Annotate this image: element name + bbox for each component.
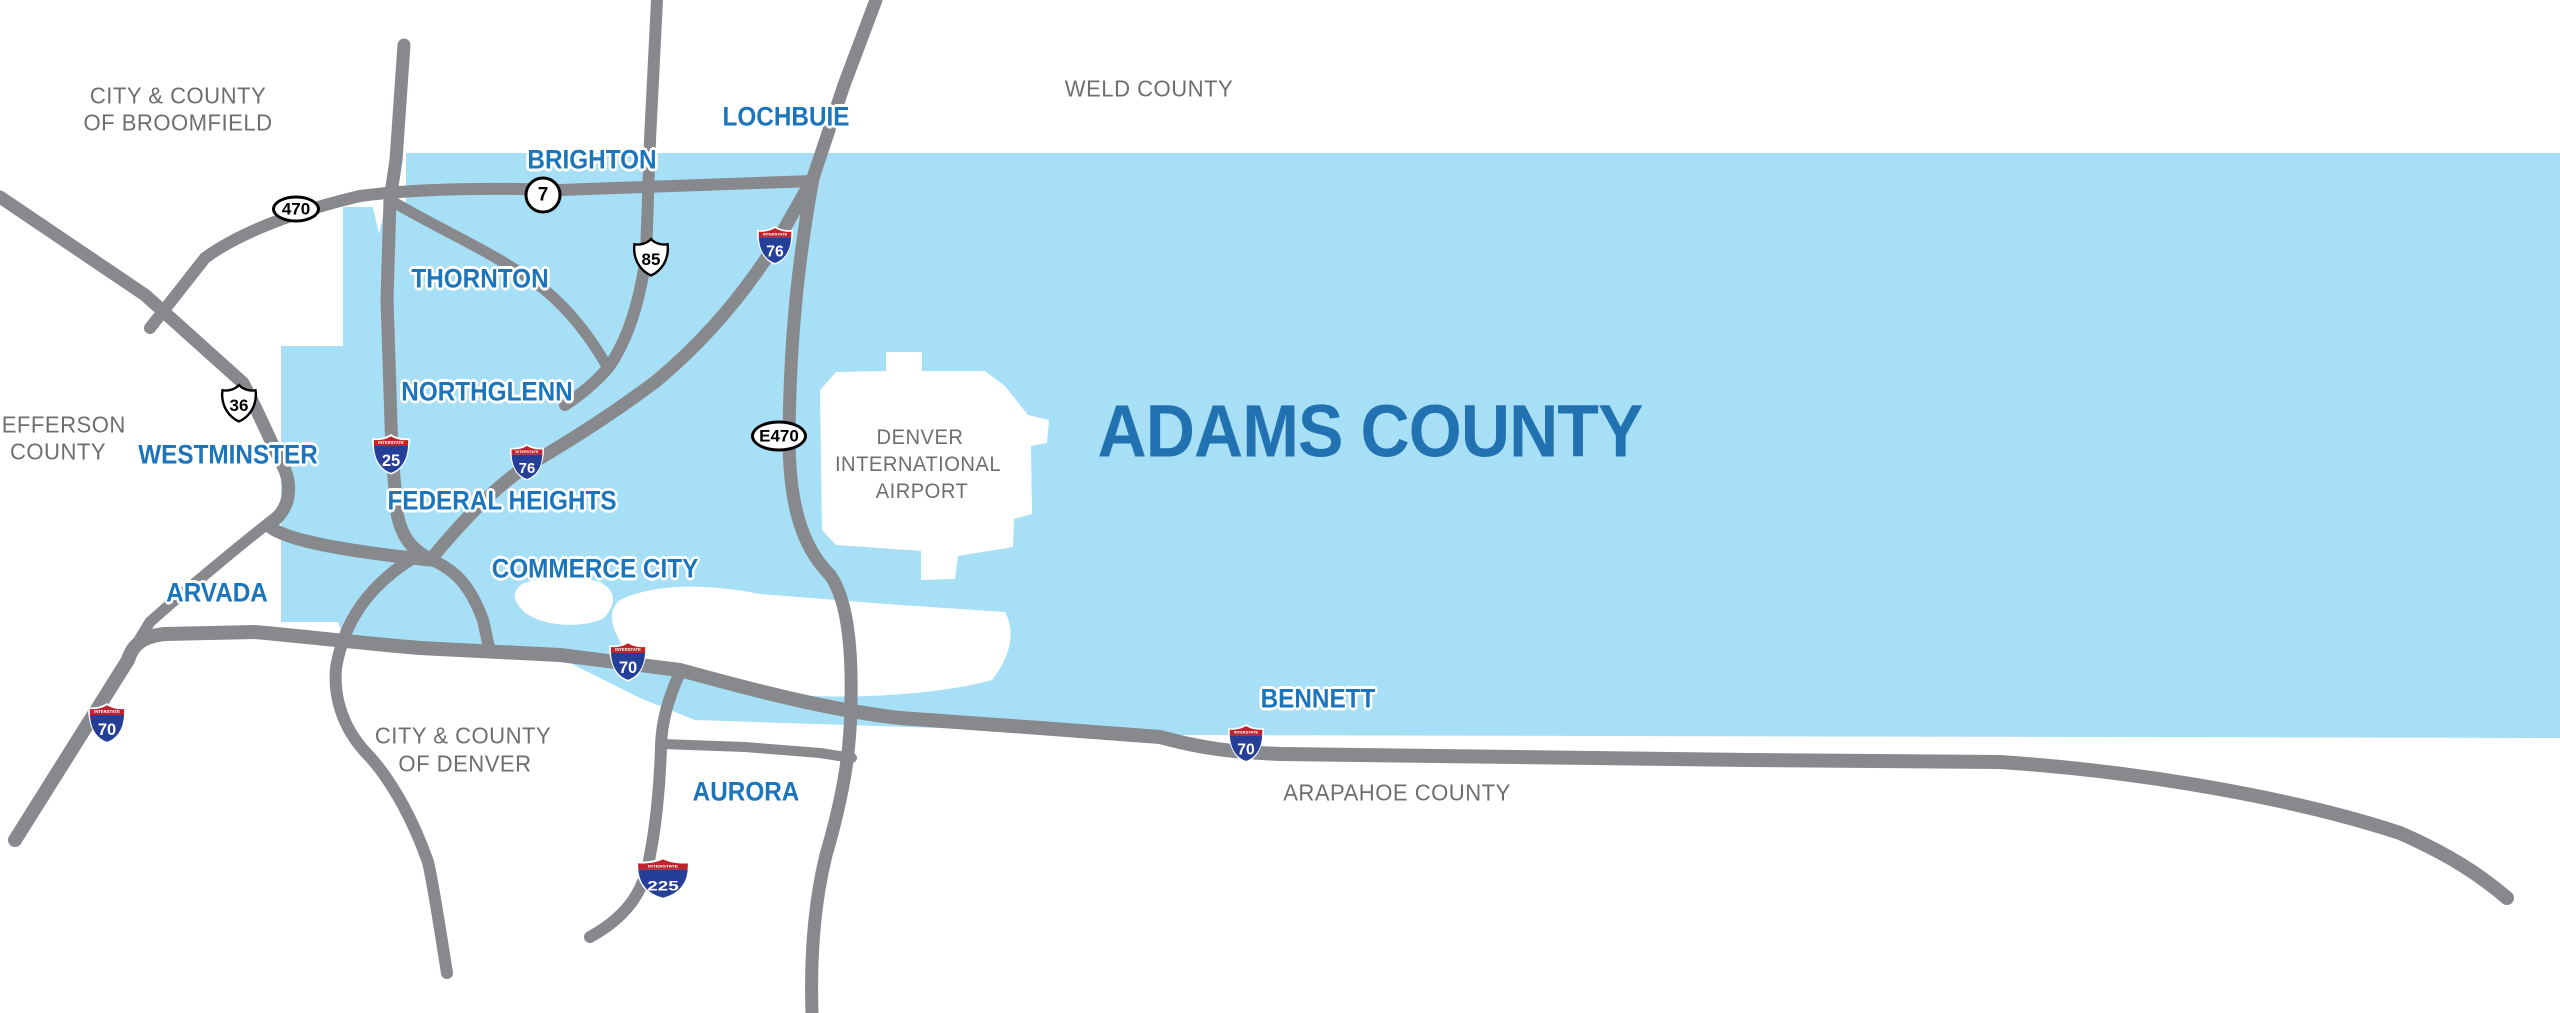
city-label-thornton: THORNTON	[411, 264, 548, 295]
area-label-broomfield-1: CITY & COUNTY	[90, 83, 266, 110]
svg-text:70: 70	[98, 721, 116, 739]
svg-text:25: 25	[382, 452, 400, 470]
area-label-broomfield-2: OF BROOMFIELD	[83, 110, 272, 137]
city-label-commerce-city: COMMERCE CITY	[492, 554, 699, 585]
svg-text:36: 36	[230, 396, 249, 415]
area-label-jefferson-2: COUNTY	[10, 439, 106, 466]
area-label-dia-3: AIRPORT	[876, 480, 969, 504]
route-badge-i70-east: INTERSTATE 70	[1227, 723, 1265, 763]
area-label-arapahoe: ARAPAHOE COUNTY	[1283, 780, 1511, 807]
svg-text:85: 85	[642, 250, 661, 269]
city-label-aurora: AURORA	[693, 777, 800, 808]
route-badge-e470: E470	[751, 421, 807, 452]
svg-text:225: 225	[647, 879, 678, 894]
city-label-northglenn: NORTHGLENN	[401, 377, 572, 408]
area-label-denver-2: OF DENVER	[398, 751, 531, 778]
svg-text:INTERSTATE: INTERSTATE	[763, 231, 788, 236]
map-canvas	[0, 0, 2560, 1013]
svg-text:INTERSTATE: INTERSTATE	[1234, 729, 1259, 734]
svg-text:76: 76	[766, 243, 784, 260]
area-label-dia-2: INTERNATIONAL	[835, 453, 1001, 477]
route-badge-sh7: 7	[525, 177, 562, 214]
area-label-weld-county: WELD COUNTY	[1065, 76, 1233, 103]
route-badge-i76-south: INTERSTATE 76	[509, 443, 545, 481]
route-badge-i70-west: INTERSTATE 70	[87, 702, 127, 744]
area-label-denver-1: CITY & COUNTY	[375, 723, 551, 750]
road-connector-east	[662, 744, 852, 758]
svg-text:INTERSTATE: INTERSTATE	[648, 864, 678, 868]
svg-text:INTERSTATE: INTERSTATE	[378, 440, 404, 445]
svg-text:76: 76	[519, 461, 536, 477]
route-badge-i76-north: INTERSTATE 76	[756, 225, 794, 265]
route-badge-us36: 36	[219, 382, 259, 424]
svg-text:70: 70	[619, 659, 637, 677]
route-badge-i70-mid: INTERSTATE 70	[608, 640, 648, 682]
route-badge-us85: 85	[631, 236, 671, 278]
svg-text:INTERSTATE: INTERSTATE	[615, 647, 641, 652]
city-label-westminster: WESTMINSTER	[138, 440, 318, 471]
area-label-jefferson-1: JEFFERSON	[0, 412, 126, 439]
route-badge-sh470: 470	[272, 196, 320, 223]
city-label-brighton: BRIGHTON	[527, 145, 656, 176]
svg-text:INTERSTATE: INTERSTATE	[515, 450, 539, 454]
city-label-lochbuie: LOCHBUIE	[723, 102, 850, 133]
svg-text:INTERSTATE: INTERSTATE	[94, 709, 120, 714]
svg-text:70: 70	[1237, 741, 1255, 758]
city-label-arvada: ARVADA	[166, 578, 268, 609]
city-label-federal-heights: FEDERAL HEIGHTS	[387, 486, 616, 517]
route-badge-i225: INTERSTATE 225	[634, 856, 692, 900]
area-label-dia-1: DENVER	[877, 426, 964, 450]
city-label-bennett: BENNETT	[1261, 684, 1376, 715]
county-title: ADAMS COUNTY	[1098, 389, 1643, 474]
route-badge-i25: INTERSTATE 25	[371, 433, 411, 475]
adams-county-map: ADAMS COUNTY LOCHBUIEBRIGHTONTHORNTONNOR…	[0, 0, 2560, 1013]
